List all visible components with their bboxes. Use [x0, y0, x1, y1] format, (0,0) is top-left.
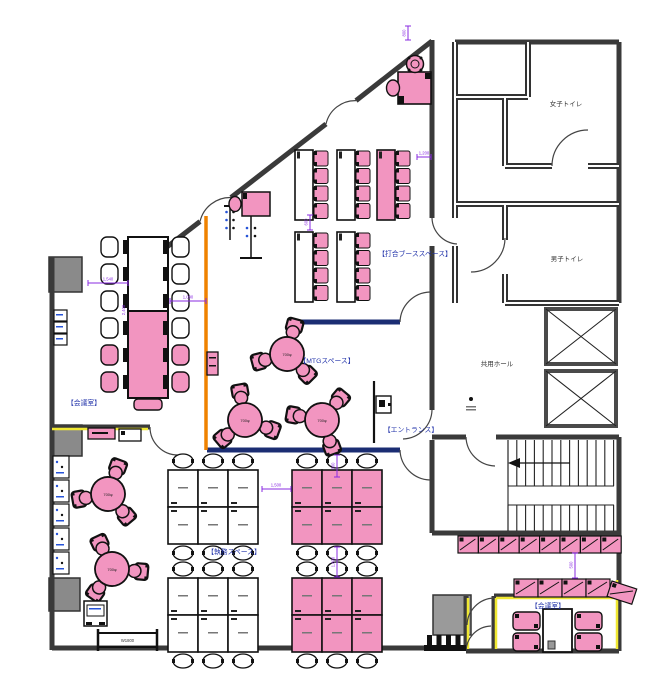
- table-dia-label: 700φ: [282, 352, 292, 357]
- dimension-label: 500: [569, 561, 574, 569]
- locker-row: [514, 579, 610, 597]
- desk-cluster: [168, 454, 258, 560]
- table-dia-label: 700φ: [317, 418, 327, 423]
- printer: [84, 601, 107, 626]
- counter: [88, 428, 141, 441]
- round-table: [66, 448, 153, 529]
- booth-desk-unit: [377, 150, 410, 220]
- room-label-work: 【執務スペース】: [207, 547, 261, 556]
- room-label-booth: 【打合ブーススペース】: [378, 249, 452, 258]
- room-label-meeting-right: 【会議室】: [531, 601, 565, 610]
- booth-desk-unit: [295, 150, 328, 220]
- room-label-mtg: 【MTGスペース】: [299, 357, 354, 365]
- toilet-block-outer-wall: [455, 42, 619, 303]
- dimension-label: 800: [402, 29, 407, 37]
- desk-cluster: [168, 562, 258, 668]
- floor-plan: 1,540 1,090 1,500 1,200 800 1,800 500 80…: [0, 0, 650, 690]
- dimension-label: 2,400: [121, 304, 126, 315]
- dimension-label: 800: [331, 462, 336, 470]
- floor-plan-canvas: 1,540 1,090 1,500 1,200 800 1,800 500 80…: [0, 0, 650, 690]
- room-label-elevator-hall: 共用ホール: [481, 359, 514, 368]
- toilet-block-walls: [455, 42, 619, 303]
- meeting-room-table: [513, 609, 602, 652]
- stairs: [508, 440, 614, 531]
- dimension-label: 1,090: [183, 295, 194, 300]
- dimension-label: 1,200: [419, 151, 430, 156]
- booth-desk-unit: [337, 232, 370, 302]
- room-label-mens-toilet: 男子トイレ: [551, 255, 584, 263]
- elevator-shafts: [546, 309, 616, 426]
- room-label-entrance: 【エントランス】: [384, 426, 438, 434]
- round-table: [204, 378, 284, 450]
- dimension-label: 1,540: [103, 277, 114, 282]
- wall-shelf: [207, 352, 218, 375]
- intercom-dot: [466, 397, 476, 411]
- reception-desk: [387, 72, 432, 104]
- locker-angled: [607, 581, 637, 604]
- dimension-label: 1,800: [331, 556, 336, 567]
- table-dia-label: 700φ: [240, 418, 250, 423]
- table-dia-label: 700φ: [107, 567, 117, 572]
- hook-stand: [424, 635, 466, 651]
- booth-desk-unit: [295, 232, 328, 302]
- room-label-meeting-left: 【会議室】: [67, 398, 101, 407]
- locker-row: [458, 536, 621, 553]
- bench-size-label: W1800: [121, 638, 135, 643]
- dimension-label: 600: [304, 218, 309, 226]
- conference-table: [101, 237, 189, 410]
- booth-desk-unit: [337, 150, 370, 220]
- room-label-womens-toilet: 女子トイレ: [550, 99, 583, 108]
- stair-treads: [508, 440, 614, 531]
- dimension-label: 1,500: [271, 483, 282, 488]
- plant: [407, 56, 424, 73]
- desk-cluster: [292, 562, 382, 668]
- table-dia-label: 700φ: [103, 492, 113, 497]
